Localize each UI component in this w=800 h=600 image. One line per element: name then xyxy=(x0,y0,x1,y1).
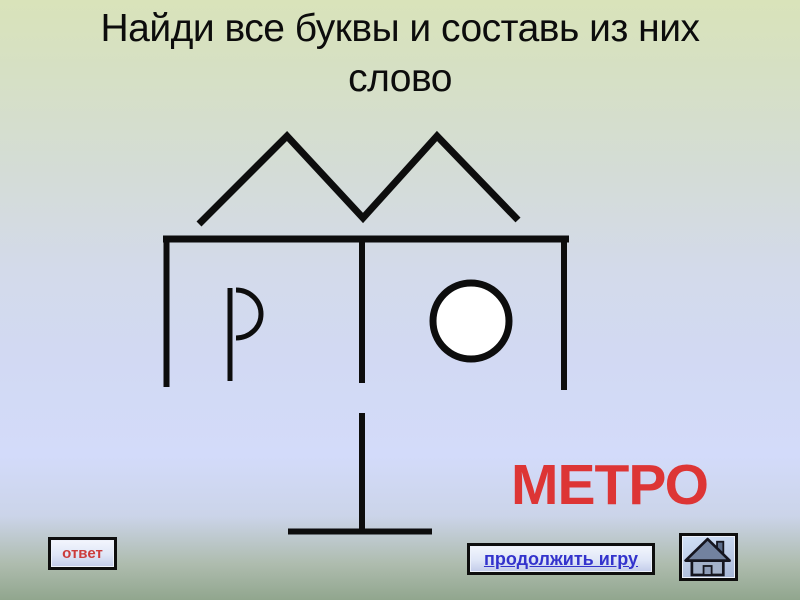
continue-game-button[interactable]: продолжить игру xyxy=(467,543,655,575)
circle-o-glyph xyxy=(433,283,509,359)
letter-r-bowl xyxy=(236,290,261,338)
home-button[interactable] xyxy=(679,533,738,581)
home-icon xyxy=(682,533,735,581)
answer-button-label: ответ xyxy=(62,545,103,562)
continue-game-label: продолжить игру xyxy=(484,549,638,570)
answer-word: МЕТРО xyxy=(511,455,741,515)
zigzag-m-line xyxy=(199,136,518,224)
home-icon-door xyxy=(704,566,712,575)
slide: Найди все буквы и составь из них слово М… xyxy=(0,0,800,600)
answer-button[interactable]: ответ xyxy=(48,537,117,570)
